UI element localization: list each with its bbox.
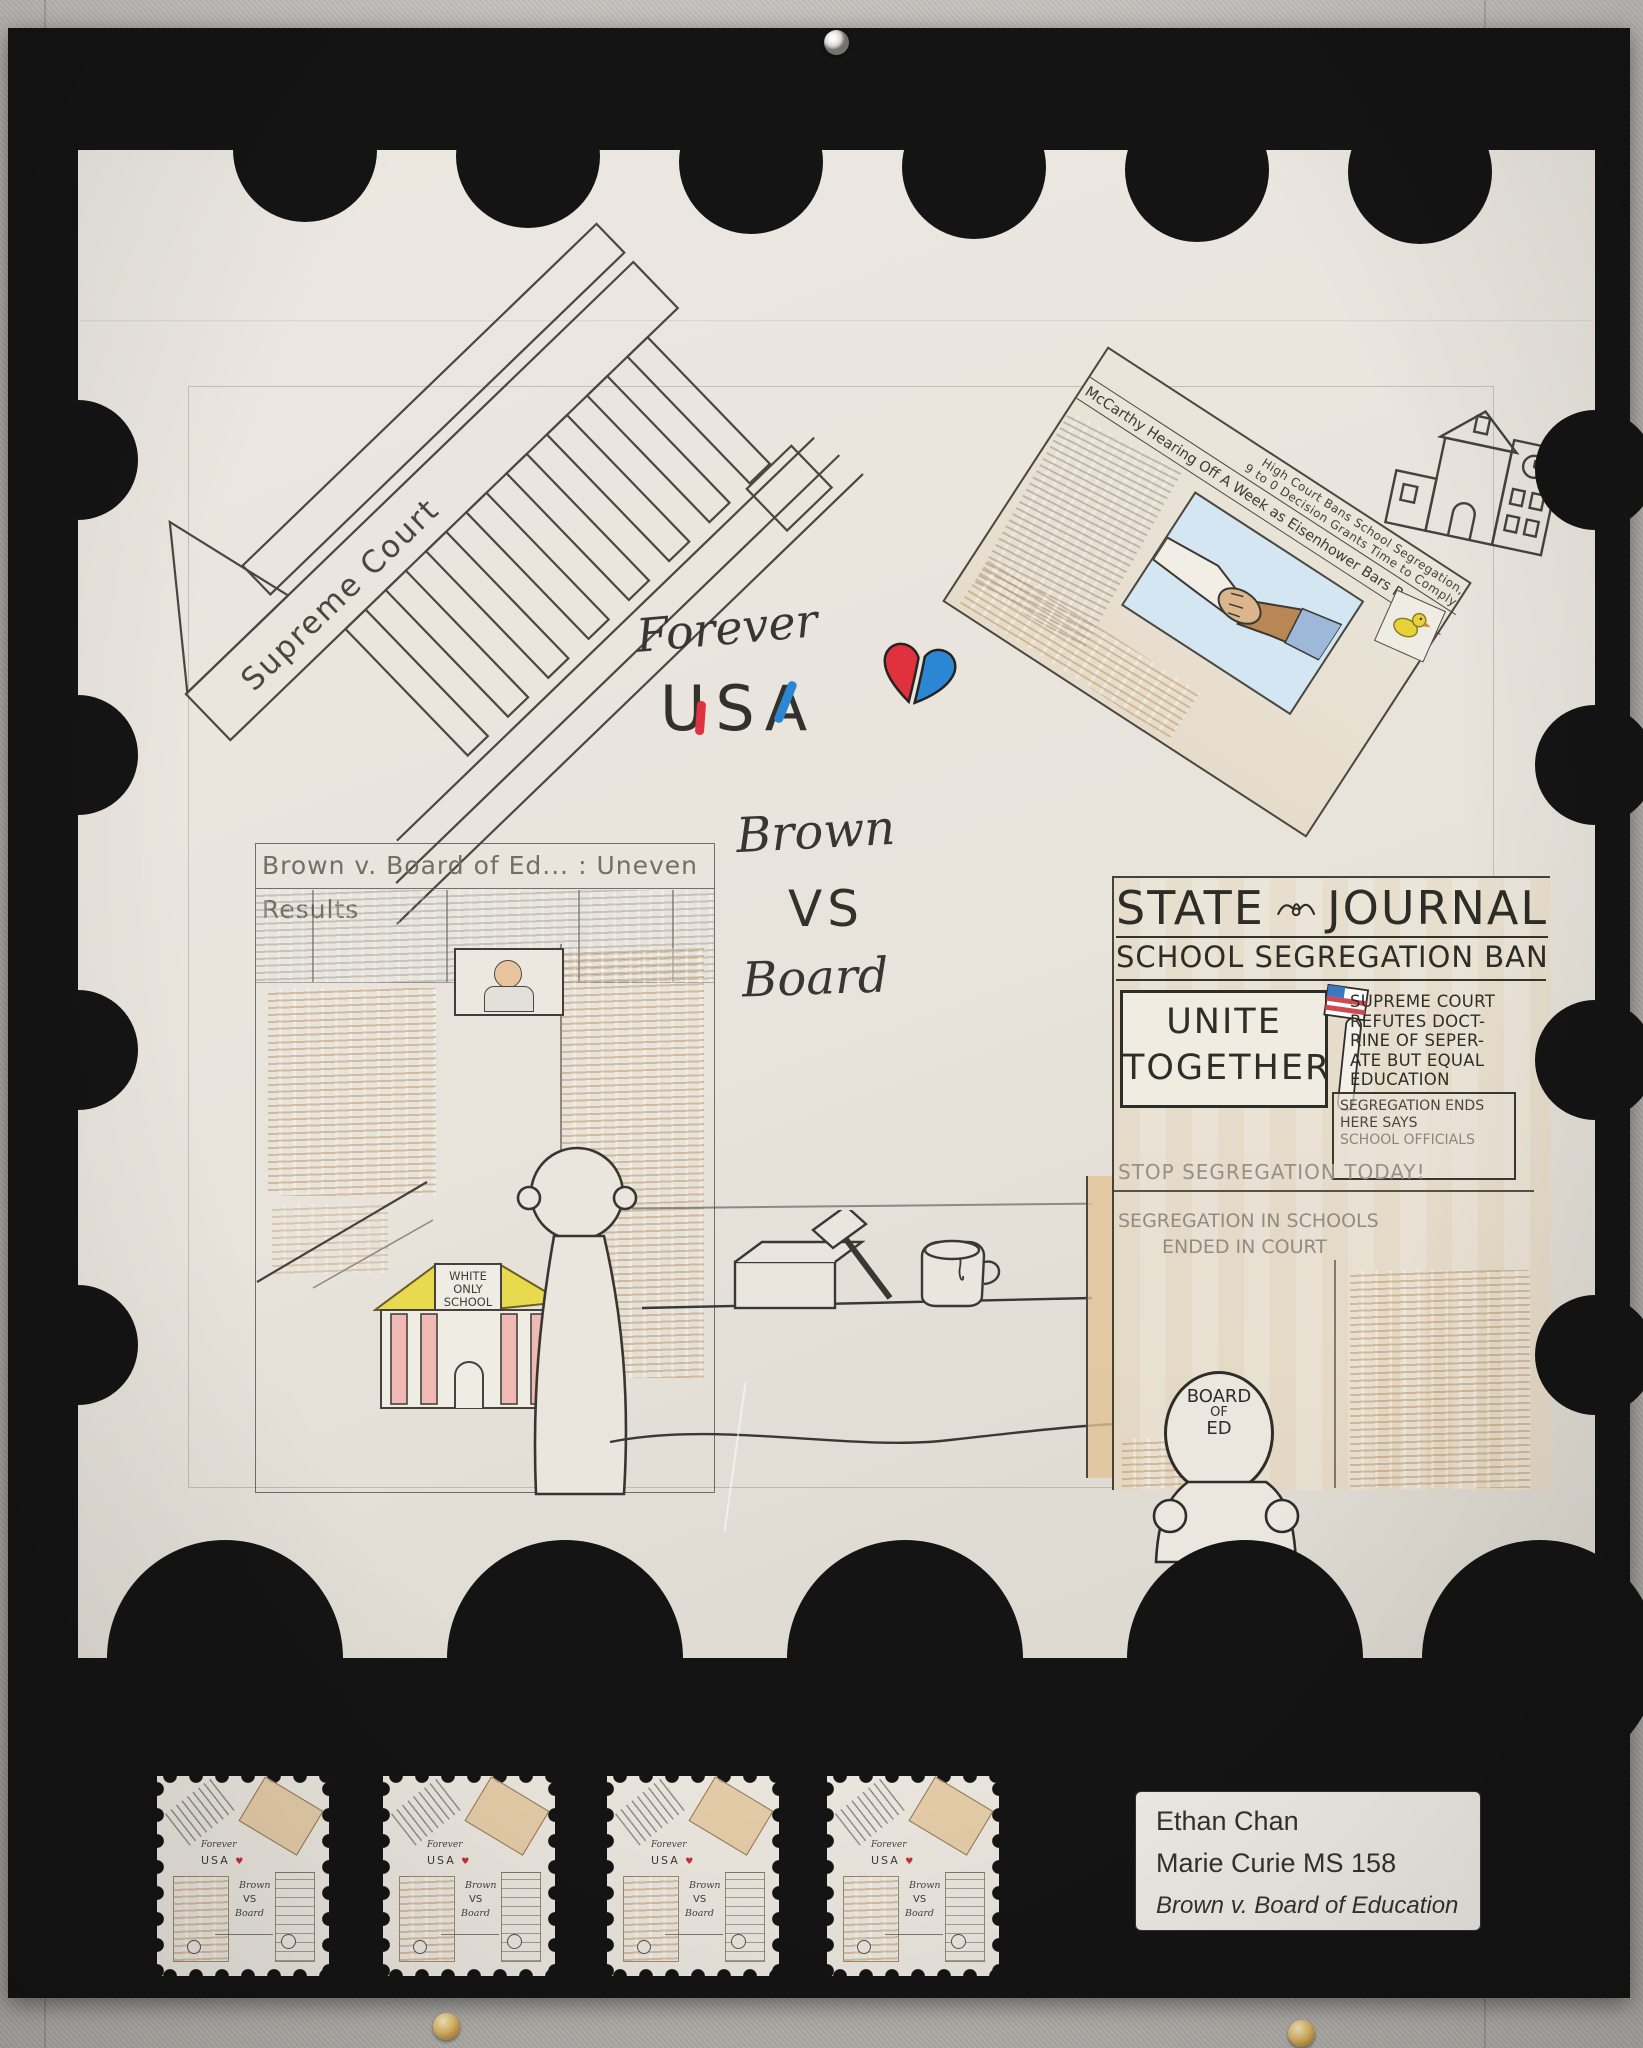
artist-school: Marie Curie MS 158 [1156,1848,1396,1879]
supreme-court-label: Supreme Court [234,491,446,698]
judge-desk-sketch [600,1210,1120,1476]
mini-heart-icon: ♥ [905,1857,915,1867]
title-board: Board [741,947,889,1008]
state-journal-masthead: STATE JOURNAL [1116,880,1548,938]
stamp-perforation [18,1285,138,1405]
segregation-banned-headline: SCHOOL SEGREGATION BANNED [1116,940,1546,981]
usa-letter-a: A [765,672,817,745]
stamp-perforation [1125,98,1269,242]
stamp-perforation [18,990,138,1110]
stamp-perforation [1535,705,1643,825]
push-pin-bottom-left [433,2013,460,2040]
artist-label-card: Ethan Chan Marie Curie MS 158 Brown v. B… [1136,1792,1480,1930]
heart-icon [870,633,966,722]
paper-crease [80,320,1593,322]
window-with-figure [454,948,564,1016]
mini-newspaper [238,1776,323,1856]
stop-segregation-line: STOP SEGREGATION TODAY! [1118,1160,1518,1184]
push-pin-bottom-right [1288,2020,1315,2047]
stamp-perforation [1535,1295,1643,1415]
mini-heart-icon: ♥ [461,1857,471,1867]
supreme-court-column-text: SUPREME COURT REFUTES DOCT- RINE OF SEPE… [1350,992,1506,1090]
masthead-journal: JOURNAL [1327,881,1548,935]
stamp-perforation [902,95,1046,239]
stamp-perforation [679,90,823,234]
stamp-perforation [1535,410,1643,530]
artist-name: Ethan Chan [1156,1806,1299,1837]
photo-of-student-stamp-artwork: Supreme Court High Court Bans School S [0,0,1643,2048]
segregation-in-schools-lines: SEGREGATION IN SCHOOLS ENDED IN COURT [1118,1208,1518,1260]
journal-rule [1114,1190,1534,1192]
push-pin-top [824,30,849,55]
mini-heart-icon: ♥ [235,1857,245,1867]
mini-usa: USA ♥ [201,1854,245,1867]
mini-stamp-3: Forever USA ♥ Brown VS Board [607,1776,779,1976]
mini-stamp-2: Forever USA ♥ Brown VS Board [383,1776,555,1976]
stamp-bottom-scallop [1127,1540,1363,1776]
mini-heart-icon: ♥ [685,1857,695,1867]
stamp-bottom-scallop [787,1540,1023,1776]
window-figure-head [494,960,522,988]
mini-supreme-court [165,1778,235,1845]
stamp-bottom-scallop [1422,1540,1643,1776]
brown-v-board-headline: Brown v. Board of Ed... : Uneven Results [256,844,714,889]
window-figure-body [484,986,534,1012]
mini-stamp-4: Forever USA ♥ Brown VS Board [827,1776,999,1976]
mini-scene-right [275,1872,315,1962]
stamp-perforation [1535,1000,1643,1120]
journal-scribble-column [1350,1270,1530,1488]
stamp-perforation [456,84,600,228]
masthead-state: STATE [1116,881,1265,935]
unite-together-sign: UNITE TOGETHER [1120,990,1328,1108]
title-brown: Brown [735,800,897,864]
mini-stamp-1: Forever USA ♥ Brown VS Board [157,1776,329,1976]
artwork-title: Brown v. Board of Education [1156,1892,1458,1920]
stamp-perforation [18,400,138,520]
usa-letter-s: S [715,672,764,745]
stamp-bottom-scallop [107,1540,343,1776]
journal-column-divider [1334,1260,1336,1488]
eagle-icon [1275,893,1317,923]
stamp-perforation [1348,100,1492,244]
stamp-bottom-scallop [447,1540,683,1776]
title-usa: USA [660,672,817,745]
usa-letter-u: U [660,672,715,745]
stamp-perforation [233,78,377,222]
title-vs: VS [788,880,864,938]
stamp-perforation [18,695,138,815]
